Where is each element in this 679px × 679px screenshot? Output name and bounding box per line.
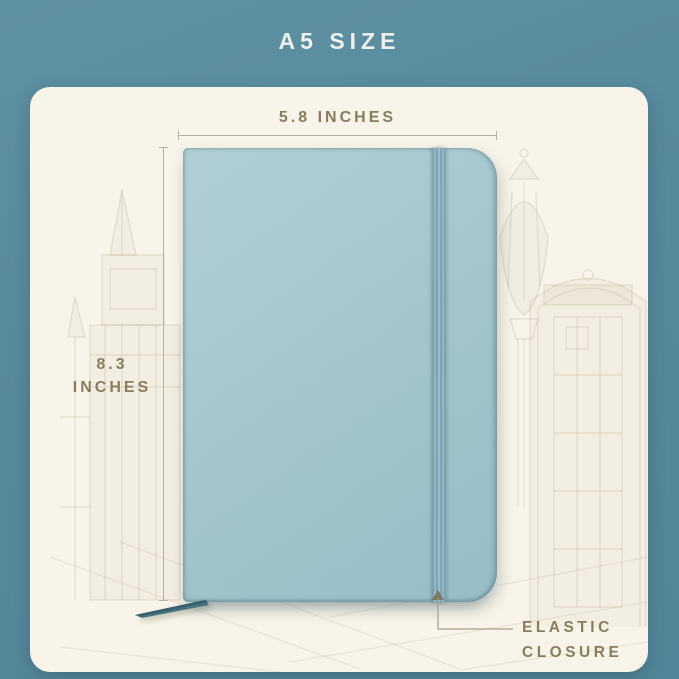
leather-texture — [183, 148, 497, 602]
bookmark-ribbon — [130, 592, 220, 627]
elastic-label-line1: ELASTIC — [522, 615, 622, 640]
page-title: A5 SIZE — [0, 28, 679, 55]
dimension-tick — [159, 147, 168, 148]
height-dimension-label: 8.3 INCHES — [66, 353, 158, 399]
elastic-band — [433, 148, 445, 602]
height-dimension-line — [163, 147, 164, 601]
width-dimension-label: 5.8 INCHES — [178, 109, 497, 127]
dimension-tick — [159, 600, 168, 601]
notebook-cover — [183, 148, 497, 602]
elastic-callout-leader-line — [428, 589, 523, 639]
phone-booth-sketch — [530, 270, 646, 627]
dimension-tick — [178, 131, 179, 140]
width-dimension-line — [178, 135, 497, 136]
elastic-label-line2: CLOSURE — [522, 640, 622, 665]
elastic-closure-label: ELASTIC CLOSURE — [522, 615, 622, 665]
product-infographic: A5 SIZE — [0, 0, 679, 679]
product-card: 5.8 INCHES 8.3 INCHES ELASTIC CLOSURE — [30, 87, 648, 672]
height-value: 8.3 — [66, 353, 158, 376]
dimension-tick — [496, 131, 497, 140]
height-unit: INCHES — [66, 376, 158, 399]
